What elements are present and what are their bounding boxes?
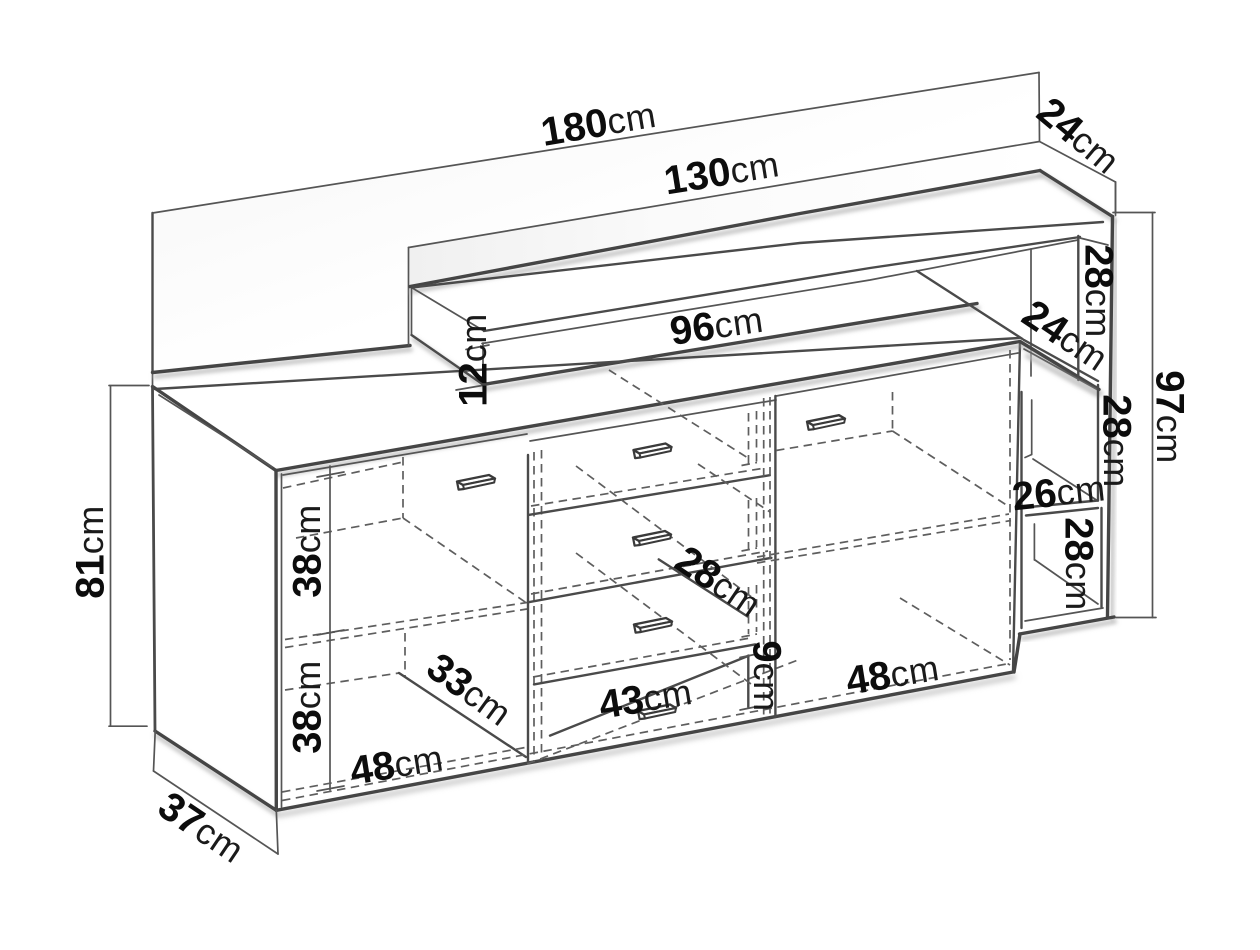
svg-text:97cm: 97cm [1147, 370, 1191, 464]
svg-text:28cm: 28cm [1056, 517, 1100, 611]
svg-text:12cm: 12cm [452, 313, 496, 407]
svg-text:81cm: 81cm [69, 505, 113, 599]
svg-text:38cm: 38cm [286, 660, 330, 754]
svg-text:9cm: 9cm [744, 640, 788, 711]
svg-text:38cm: 38cm [286, 504, 330, 598]
